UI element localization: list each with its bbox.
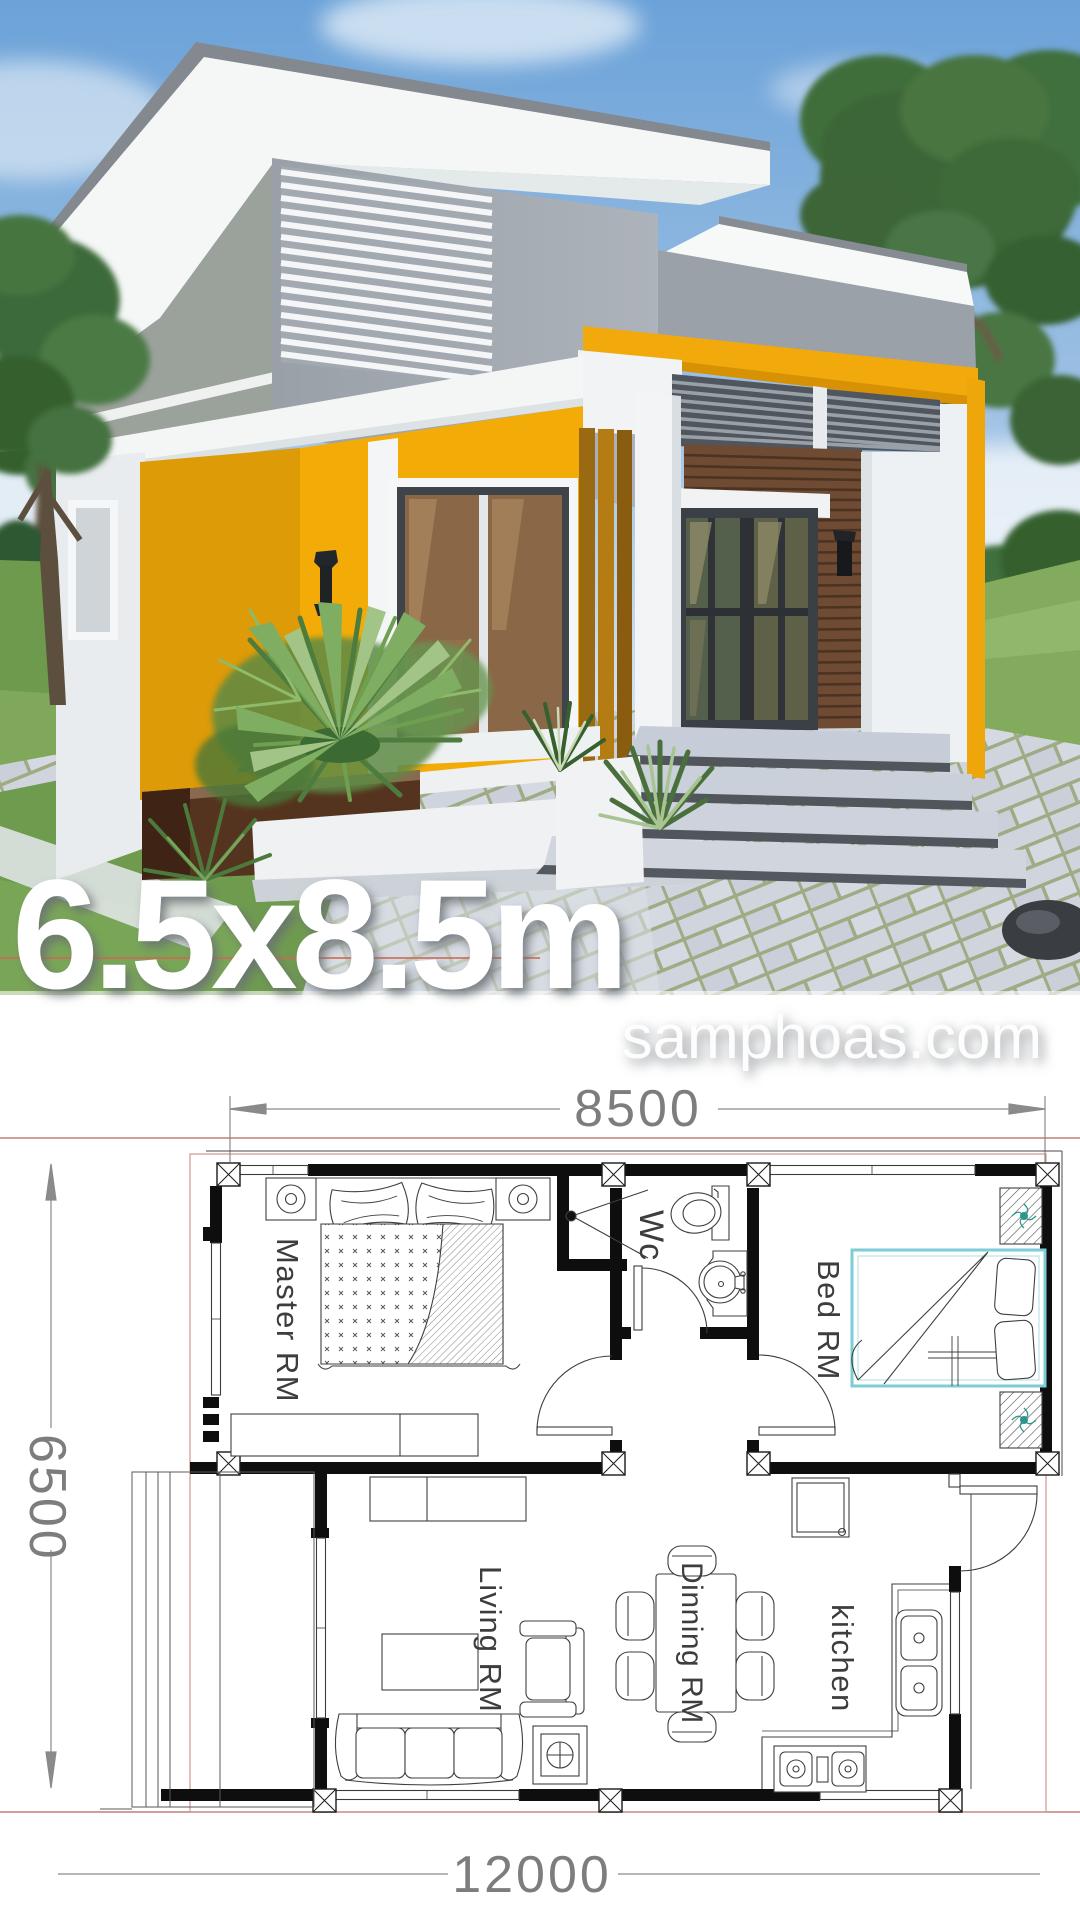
svg-text:Living RM: Living RM [473, 1566, 508, 1713]
svg-text:Dinning RM: Dinning RM [675, 1562, 708, 1724]
svg-text:6.5x8.5m: 6.5x8.5m [12, 848, 623, 1022]
svg-text:Wc: Wc [632, 1210, 670, 1261]
svg-text:Bed RM: Bed RM [811, 1260, 846, 1381]
svg-text:12000: 12000 [452, 1846, 612, 1904]
svg-text:8500: 8500 [574, 1080, 702, 1138]
svg-text:6500: 6500 [18, 1434, 76, 1562]
svg-text:Master RM: Master RM [270, 1238, 305, 1403]
svg-text:kitchen: kitchen [825, 1604, 860, 1713]
svg-text:samphoas.com: samphoas.com [622, 1003, 1042, 1072]
